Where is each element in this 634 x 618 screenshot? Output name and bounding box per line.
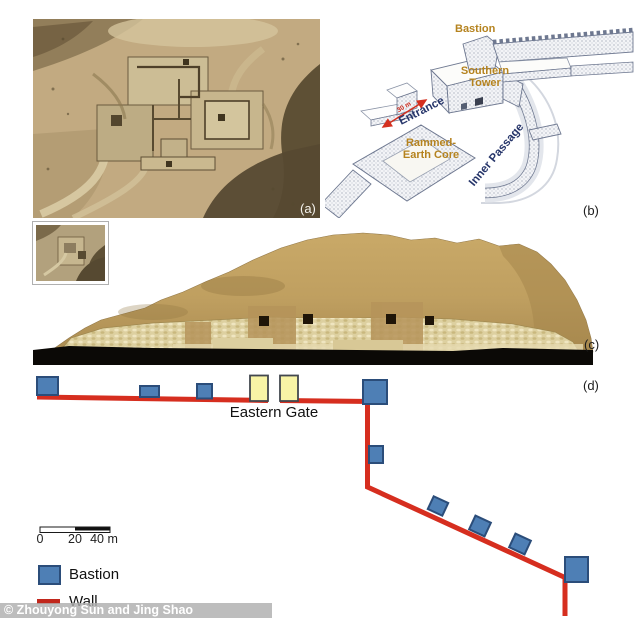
bastion-marker: [140, 386, 159, 397]
figure-canvas: (a): [0, 0, 634, 618]
bastion-marker: [369, 446, 383, 463]
southwest-wall: [325, 170, 371, 218]
legend-bastion-label: Bastion: [69, 566, 119, 583]
label-core-line2: Earth Core: [402, 149, 460, 161]
label-core-line1: Rammed-: [402, 137, 460, 149]
panel-a-letter: (a): [300, 201, 316, 216]
gate-markers: [250, 376, 298, 402]
wall-line: [37, 397, 566, 616]
fortification-diagram: [325, 12, 634, 218]
panel-a: [33, 19, 320, 218]
legend-bastion-swatch: [39, 566, 60, 584]
bastion-marker: [565, 557, 588, 582]
panel-b-letter: (b): [583, 203, 599, 218]
scale-tick-40m: 40 m: [86, 532, 122, 546]
bastion-marker: [363, 380, 387, 404]
scale-tick-0: 0: [33, 532, 47, 546]
panel-c: [33, 226, 600, 367]
label-bastion: Bastion: [455, 23, 495, 35]
panel-b: [325, 12, 634, 218]
bastion-marker: [428, 496, 448, 515]
label-southern-tower: Southern Tower: [458, 65, 512, 89]
panel-c-letter: (c): [584, 337, 599, 352]
gate-marker: [280, 376, 298, 402]
gate-marker: [250, 376, 268, 402]
panel-d-letter: (d): [583, 378, 599, 393]
label-southern-tower-line1: Southern: [458, 65, 512, 77]
label-rammed-earth-core: Rammed- Earth Core: [402, 137, 460, 161]
scale-tick-20: 20: [62, 532, 88, 546]
label-southern-tower-line2: Tower: [458, 77, 512, 89]
aerial-photo-image: [33, 19, 320, 218]
wall-photo-image: [33, 226, 600, 367]
bastion-marker: [197, 384, 212, 399]
bastion-marker: [37, 377, 58, 395]
eastern-gate-label: Eastern Gate: [228, 404, 320, 421]
credit-watermark: © Zhouyong Sun and Jing Shao: [0, 603, 272, 618]
